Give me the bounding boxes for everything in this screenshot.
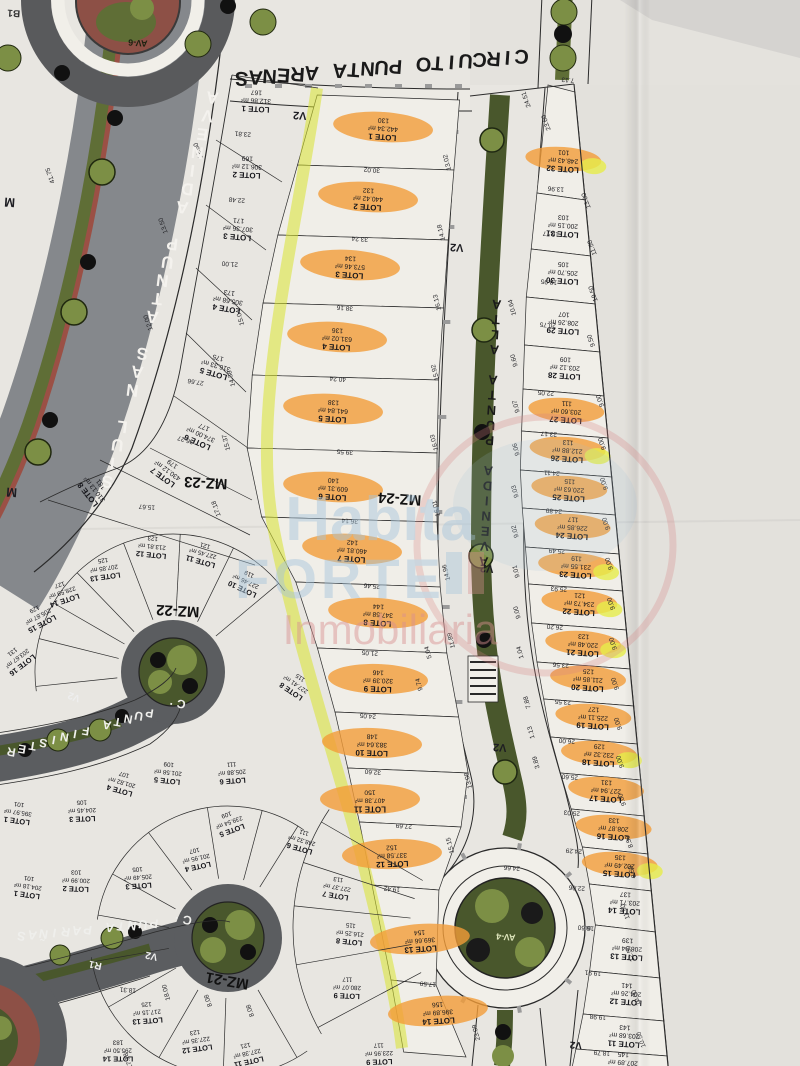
svg-text:115: 115 (345, 921, 356, 929)
svg-text:O: O (415, 52, 432, 75)
svg-text:111: 111 (561, 399, 572, 407)
svg-text:204.45 m²: 204.45 m² (68, 806, 96, 814)
dimension-label: 19.98 (589, 1012, 606, 1020)
dimension-label: 25.60 (561, 772, 578, 780)
svg-text:T: T (488, 387, 497, 403)
svg-text:140: 140 (327, 476, 339, 484)
dimension-label: 21.00 (221, 259, 238, 267)
svg-text:136: 136 (331, 326, 343, 334)
road-label: M (6, 485, 18, 501)
dimension-label: 24.05 (359, 711, 376, 719)
dimension-label: 27.69 (395, 821, 412, 829)
dimension-label: 30.02 (363, 165, 380, 173)
road-label: B1 (7, 7, 21, 19)
svg-text:167: 167 (250, 88, 262, 96)
road-label: V2 (493, 741, 507, 754)
dimension-label: 25.93 (550, 584, 567, 592)
svg-text:A: A (248, 65, 264, 88)
svg-text:123: 123 (147, 534, 159, 542)
watermark-word-3: Inmobiliaria (283, 606, 498, 653)
dimension-label: 18.95 (540, 277, 557, 285)
dimension-label: 22.05 (537, 388, 554, 396)
dimension-label: 22.06 (568, 883, 585, 891)
svg-text:407.38 m²: 407.38 m² (354, 797, 385, 804)
dimension-label: 33.24 (351, 234, 368, 242)
road-label: V2 (293, 109, 307, 122)
dimension-label: 18.31 (119, 985, 136, 993)
svg-text:337.58 m²: 337.58 m² (376, 851, 407, 859)
dimension-label: 40.24 (329, 374, 346, 382)
svg-text:125: 125 (97, 556, 109, 564)
svg-text:T: T (491, 312, 500, 328)
svg-text:131: 131 (600, 778, 612, 786)
svg-text:P: P (166, 234, 180, 254)
svg-text:T: T (347, 58, 361, 81)
svg-text:105: 105 (76, 798, 87, 805)
svg-text:N: N (486, 403, 496, 419)
svg-text:N: N (360, 57, 376, 80)
svg-text:A: A (145, 307, 160, 327)
svg-text:320.39 m²: 320.39 m² (362, 676, 393, 684)
road-label: M (4, 195, 16, 211)
block-label-mz-22: MZ-22 (156, 601, 200, 620)
svg-text:127: 127 (588, 705, 600, 713)
svg-text:LOTE 11: LOTE 11 (353, 805, 386, 814)
svg-text:383.64 m²: 383.64 m² (356, 740, 387, 748)
dimension-label: 13.96 (547, 184, 564, 192)
dimension-label: 15.67 (138, 502, 155, 510)
svg-text:S: S (234, 67, 249, 90)
svg-text:D: D (180, 179, 195, 199)
dimension-label: 18.79 (593, 1048, 610, 1056)
svg-text:LOTE 1: LOTE 1 (241, 104, 270, 114)
dimension-label: 26.20 (546, 622, 563, 630)
plat-map-svg: LOTE 32248.43 m²101LOTE 31200.15 m²103LO… (0, 0, 800, 1066)
dimension-label: 15.60 (577, 923, 594, 931)
svg-text:A: A (205, 87, 220, 107)
svg-text:123: 123 (578, 632, 590, 640)
map-photo: LOTE 32248.43 m²101LOTE 31200.15 m²103LO… (0, 0, 800, 1066)
dimension-label: 16.77 (542, 229, 559, 237)
watermark-logo-drop (453, 439, 637, 571)
svg-text:148: 148 (366, 732, 378, 739)
road-label: V2 (450, 241, 464, 254)
svg-text:N: N (190, 142, 205, 162)
dimension-label: 23.56 (552, 660, 569, 668)
watermark-word-1: Habita (285, 485, 475, 554)
svg-text:107: 107 (558, 310, 570, 318)
svg-text:L: L (491, 327, 500, 343)
dimension-label: 22.48 (228, 195, 245, 203)
road-label: V2 (569, 1039, 582, 1051)
svg-text:A: A (487, 372, 498, 388)
dimension-label: 32.60 (364, 767, 381, 775)
dimension-label: 23.17 (540, 429, 557, 437)
dimension-label: 17.59 (419, 979, 436, 987)
svg-text:152: 152 (386, 843, 398, 850)
svg-text:105: 105 (557, 260, 569, 268)
dimension-label: 20.75 (539, 320, 556, 328)
road-label: AV-4 (496, 931, 516, 942)
road-label: AV-6 (128, 37, 148, 48)
svg-text:U: U (110, 435, 125, 455)
svg-text:103: 103 (558, 213, 570, 221)
svg-text:103: 103 (70, 868, 81, 875)
svg-text:A: A (491, 297, 502, 313)
svg-text:111: 111 (226, 760, 236, 768)
svg-text:LOTE 10: LOTE 10 (355, 748, 388, 758)
watermark-bar-blue (446, 552, 462, 594)
svg-text:LOTE 9: LOTE 9 (333, 991, 360, 1001)
svg-text:138: 138 (327, 398, 339, 406)
svg-text:LOTE 2: LOTE 2 (62, 884, 89, 894)
svg-text:109: 109 (163, 760, 175, 768)
svg-text:A: A (332, 59, 348, 82)
svg-text:223.95 m²: 223.95 m² (365, 1049, 393, 1057)
dimension-label: 23.81 (234, 129, 251, 137)
svg-text:S: S (136, 343, 150, 363)
svg-text:200.99 m²: 200.99 m² (62, 876, 90, 884)
svg-text:LOTE 12: LOTE 12 (375, 859, 408, 869)
svg-text:123: 123 (189, 1028, 201, 1036)
svg-text:LOTE 9: LOTE 9 (366, 1057, 393, 1066)
watermark-word-2: FORTE (235, 547, 445, 610)
svg-text:134: 134 (344, 254, 356, 262)
svg-text:117: 117 (373, 1041, 384, 1048)
svg-text:A: A (489, 342, 500, 358)
svg-text:154: 154 (413, 928, 425, 936)
svg-text:280.07 m²: 280.07 m² (333, 983, 361, 991)
svg-text:LOTE 3: LOTE 3 (69, 814, 96, 824)
svg-text:N: N (155, 270, 170, 290)
svg-text:U: U (160, 252, 175, 272)
svg-text:101: 101 (13, 800, 25, 808)
svg-text:E: E (196, 124, 210, 144)
svg-text:N: N (125, 380, 140, 400)
svg-text:A: A (130, 362, 145, 382)
svg-text:156: 156 (431, 1000, 443, 1008)
svg-text:U: U (458, 49, 474, 72)
svg-text:130: 130 (377, 116, 389, 124)
svg-text:117: 117 (342, 975, 353, 982)
dimension-label: 19.42 (383, 884, 400, 892)
svg-text:125: 125 (140, 1000, 151, 1008)
svg-text:LOTE 6: LOTE 6 (219, 776, 246, 787)
svg-text:S: S (101, 471, 115, 491)
dimension-label: 38.16 (336, 303, 353, 311)
svg-text:171: 171 (233, 216, 245, 224)
svg-text:C: C (514, 45, 530, 68)
svg-text:129: 129 (593, 742, 605, 750)
svg-text:101: 101 (558, 148, 570, 156)
svg-text:150: 150 (364, 789, 375, 796)
svg-text:109: 109 (559, 355, 571, 363)
block-label-mz-23: MZ-23 (184, 473, 228, 492)
svg-text:LOTE 3: LOTE 3 (125, 881, 152, 892)
dimension-label: 39.55 (336, 447, 353, 455)
svg-text:132: 132 (362, 186, 374, 194)
dimension-label: 23.55 (554, 697, 571, 705)
dimension-label: 19.91 (584, 968, 601, 976)
svg-text:183: 183 (112, 1039, 123, 1046)
dimension-label: 24.66 (503, 863, 520, 871)
dimension-label: 25.03 (563, 808, 580, 816)
lot-lote-11-150: LOTE 11407.38 m²150 (320, 784, 420, 814)
svg-text:133: 133 (608, 816, 620, 824)
dimension-label: 7.13 (561, 76, 574, 84)
svg-text:105: 105 (131, 865, 142, 873)
dimension-label: 26.00 (558, 736, 575, 744)
dimension-label: 24.29 (565, 846, 582, 854)
svg-text:LOTE 9: LOTE 9 (363, 684, 392, 694)
svg-text:146: 146 (372, 668, 384, 675)
svg-text:121: 121 (574, 591, 586, 599)
svg-text:LOTE 2: LOTE 2 (232, 170, 261, 180)
svg-text:A: A (175, 197, 190, 217)
svg-text:101: 101 (23, 874, 35, 882)
watermark-bar-red (468, 552, 484, 594)
svg-text:169: 169 (241, 154, 253, 162)
